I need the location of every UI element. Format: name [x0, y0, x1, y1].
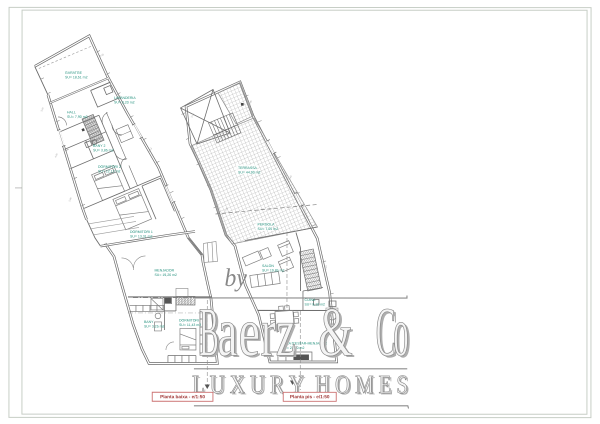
svg-text:LAVANDERIA: LAVANDERIA [114, 96, 136, 100]
svg-text:SU= 19,26 m2: SU= 19,26 m2 [154, 273, 177, 277]
svg-text:SU= 12,12 m2: SU= 12,12 m2 [98, 169, 121, 173]
svg-text:CUINA: CUINA [304, 298, 316, 302]
svg-text:Planta pis - e/1:50: Planta pis - e/1:50 [290, 394, 330, 399]
svg-text:SU= 18,51 m2: SU= 18,51 m2 [65, 75, 88, 79]
svg-text:Planta baixa - e/1:50: Planta baixa - e/1:50 [160, 394, 205, 399]
svg-text:GARATGE: GARATGE [65, 71, 83, 75]
svg-text:MENJADOR: MENJADOR [154, 268, 174, 272]
svg-text:SU= 3,25 m2: SU= 3,25 m2 [144, 324, 165, 328]
svg-text:HALL: HALL [67, 110, 76, 114]
svg-text:SU= 19,85 m2: SU= 19,85 m2 [262, 268, 285, 272]
svg-text:SU= 7,90 m2: SU= 7,90 m2 [67, 115, 88, 119]
svg-text:TERRASSA: TERRASSA [238, 166, 258, 170]
svg-text:DORMITORI 2: DORMITORI 2 [98, 165, 121, 169]
svg-text:SU= 3,85 m2: SU= 3,85 m2 [93, 148, 114, 152]
svg-text:SU= 3,20 m2: SU= 3,20 m2 [114, 100, 135, 104]
svg-text:SU= 11,43 m2: SU= 11,43 m2 [179, 323, 201, 327]
svg-text:BANY: BANY [144, 320, 154, 324]
svg-text:SU= 13,31 m2: SU= 13,31 m2 [130, 234, 153, 238]
svg-text:DORMITORI: DORMITORI [179, 318, 199, 322]
svg-text:SU= 7,05 m2: SU= 7,05 m2 [257, 227, 278, 231]
svg-text:SALON: SALON [262, 264, 274, 268]
svg-text:BANY 2: BANY 2 [93, 144, 105, 148]
svg-text:DORMITORI 1: DORMITORI 1 [130, 230, 153, 234]
svg-text:SU= 8,10 m2: SU= 8,10 m2 [304, 303, 325, 307]
svg-text:SU= 44,90 m2: SU= 44,90 m2 [238, 170, 261, 174]
svg-text:PERGOLA: PERGOLA [257, 222, 275, 226]
